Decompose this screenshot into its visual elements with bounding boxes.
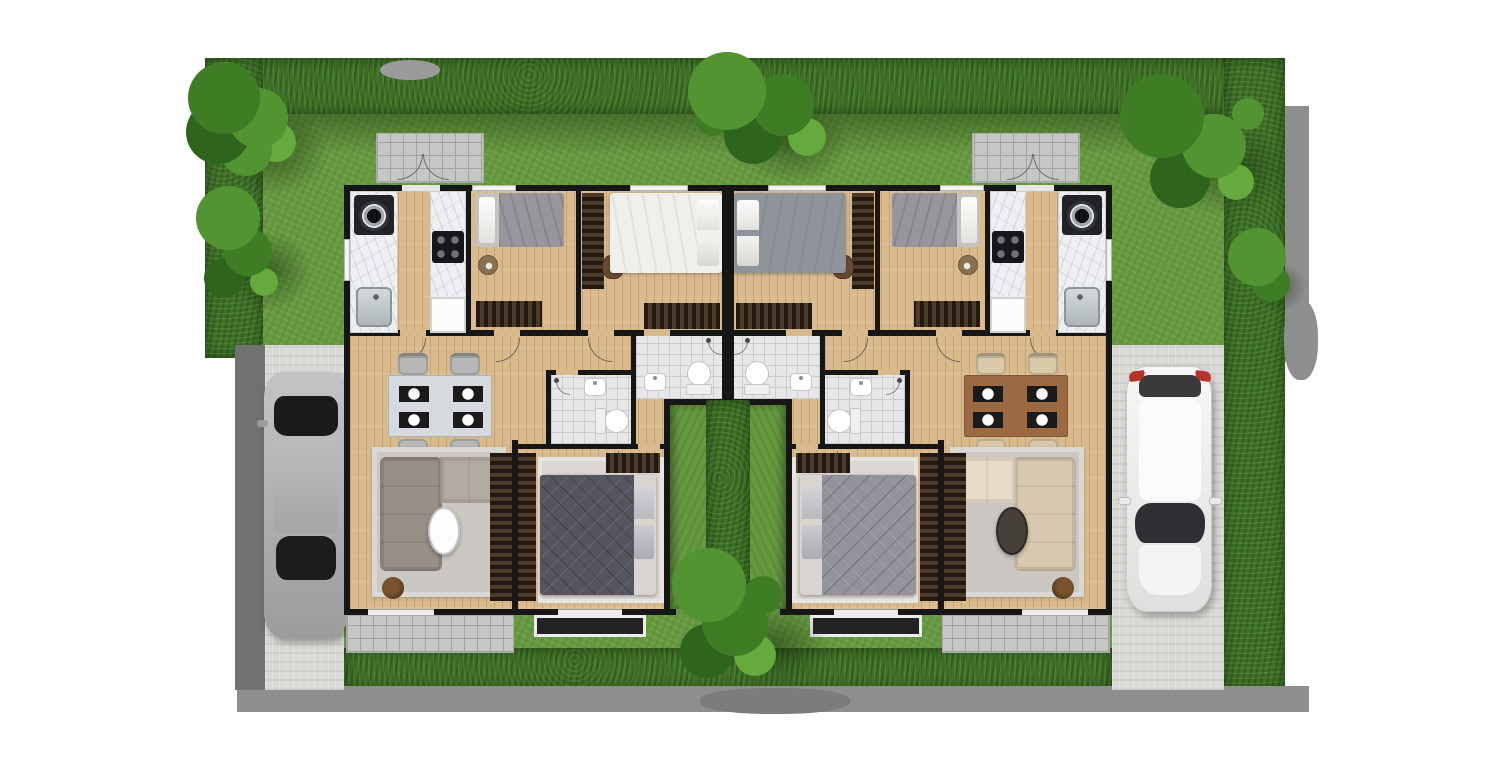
tree [688,52,766,130]
window [472,185,516,191]
door-opening [796,444,818,449]
double-bed-tufted [800,475,916,595]
single-bed [476,193,564,247]
car-rear-window [1139,375,1201,397]
dresser [796,453,850,473]
toilet [746,361,770,395]
toilet [595,408,629,432]
car-mirror [257,420,268,427]
tree [1228,228,1286,286]
tree [1120,74,1204,158]
door-opening [1030,330,1056,336]
house-unit-right [728,185,1112,615]
sliding-door [558,609,622,615]
wall [905,370,910,449]
door-opening [588,330,614,336]
sideboard [476,301,542,327]
car-hood [1139,545,1201,595]
dining-chair [1028,353,1058,375]
side-table [478,255,498,275]
car-roof [1139,399,1201,501]
washbasin [584,378,606,396]
car-mirror [1118,497,1131,505]
sliding-door [1022,609,1088,615]
left-driveway-curb [235,345,265,690]
kitchen-sink [356,287,392,327]
door-swing-arc [423,154,449,180]
dining-table [964,375,1068,437]
tree [188,62,260,134]
tree-shadow-on-path [700,688,850,714]
sideboard [914,301,980,327]
dining-table [388,375,492,437]
washbasin [850,378,872,396]
bedroom-wardrobe [920,453,938,601]
dining-chair [398,353,428,375]
desk-wardrobe [852,193,874,289]
door-swing-arc [397,154,423,180]
entrance-porch [376,133,484,183]
tv-console [490,453,512,601]
car-windshield [1135,503,1205,543]
kitchen-sink [1064,287,1100,327]
rear-patio [346,615,514,653]
rock-cluster [380,60,440,80]
double-bed-tufted [540,475,656,595]
master-double-bed [610,193,722,273]
dresser [644,303,720,329]
gas-stove [432,231,464,263]
door-opening [936,330,962,336]
door-swing-arc [1033,154,1059,180]
coffee-table [996,507,1028,555]
white-car [1126,366,1212,612]
round-pouf [1052,577,1074,599]
single-bed [892,193,980,247]
desk-wardrobe [582,193,604,289]
washing-machine [354,195,394,235]
wall [664,405,670,615]
bedroom-terrace [534,615,646,637]
washing-machine [1062,195,1102,235]
dresser [606,453,660,473]
refrigerator [990,297,1026,333]
coffee-table [428,507,460,555]
master-double-bed [734,193,846,273]
toilet [686,361,710,395]
house-unit-left [344,185,728,615]
side-table [958,255,978,275]
door-swing-arc [1007,154,1033,180]
car-roof [274,438,338,534]
dining-chair [450,353,480,375]
floor-plan-canvas [0,0,1500,784]
washbasin [644,373,666,391]
round-pouf [382,577,404,599]
car-windshield [274,396,338,436]
tv-console [944,453,966,601]
window [630,185,688,191]
entrance-porch [972,133,1080,183]
dining-chair [976,353,1006,375]
wall [466,191,471,330]
rear-patio [942,615,1110,653]
refrigerator [430,297,466,333]
door-opening [842,330,868,336]
door-opening [494,330,520,336]
sliding-door [834,609,898,615]
window [940,185,984,191]
dresser [736,303,812,329]
sliding-door [368,609,434,615]
wall [576,191,581,330]
silver-car [264,372,348,638]
car-mirror [1209,497,1222,505]
car-rear-window [276,536,336,580]
tree [672,548,746,622]
door-opening [638,444,660,449]
tree [196,186,260,250]
door-opening [400,330,426,336]
toilet [827,408,861,432]
washbasin [790,373,812,391]
wall [875,191,880,330]
gas-stove [992,231,1024,263]
window [1106,239,1112,281]
bedroom-wardrobe [518,453,536,601]
